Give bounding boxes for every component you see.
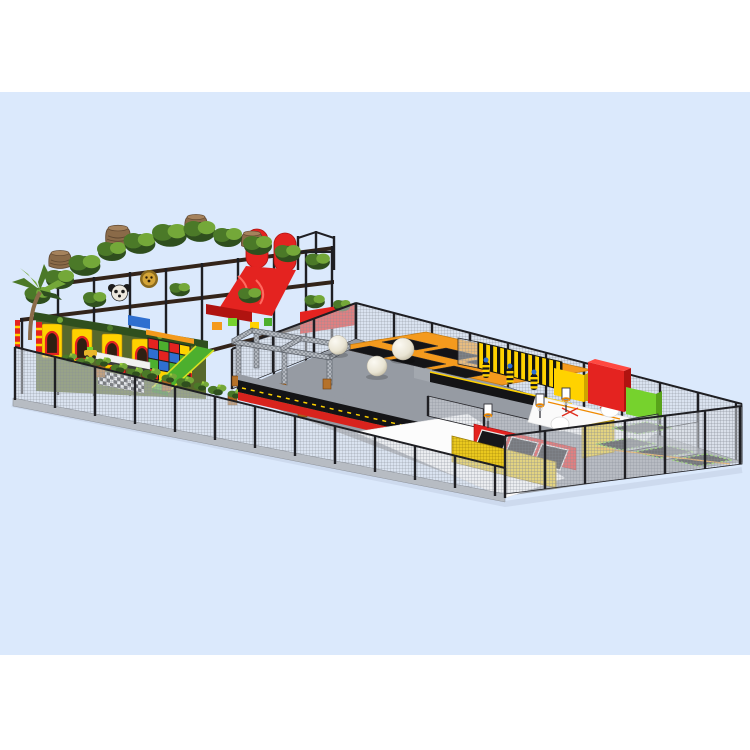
foam-pad-red	[588, 359, 631, 412]
tree-trunk	[49, 250, 71, 268]
giant-ball	[367, 356, 387, 376]
lion-head	[140, 270, 158, 288]
product-render-stage	[0, 0, 750, 750]
entrance-striped-pole	[15, 320, 20, 348]
giant-ball	[329, 336, 348, 355]
giant-ball	[392, 338, 414, 360]
playground-render	[0, 0, 750, 750]
